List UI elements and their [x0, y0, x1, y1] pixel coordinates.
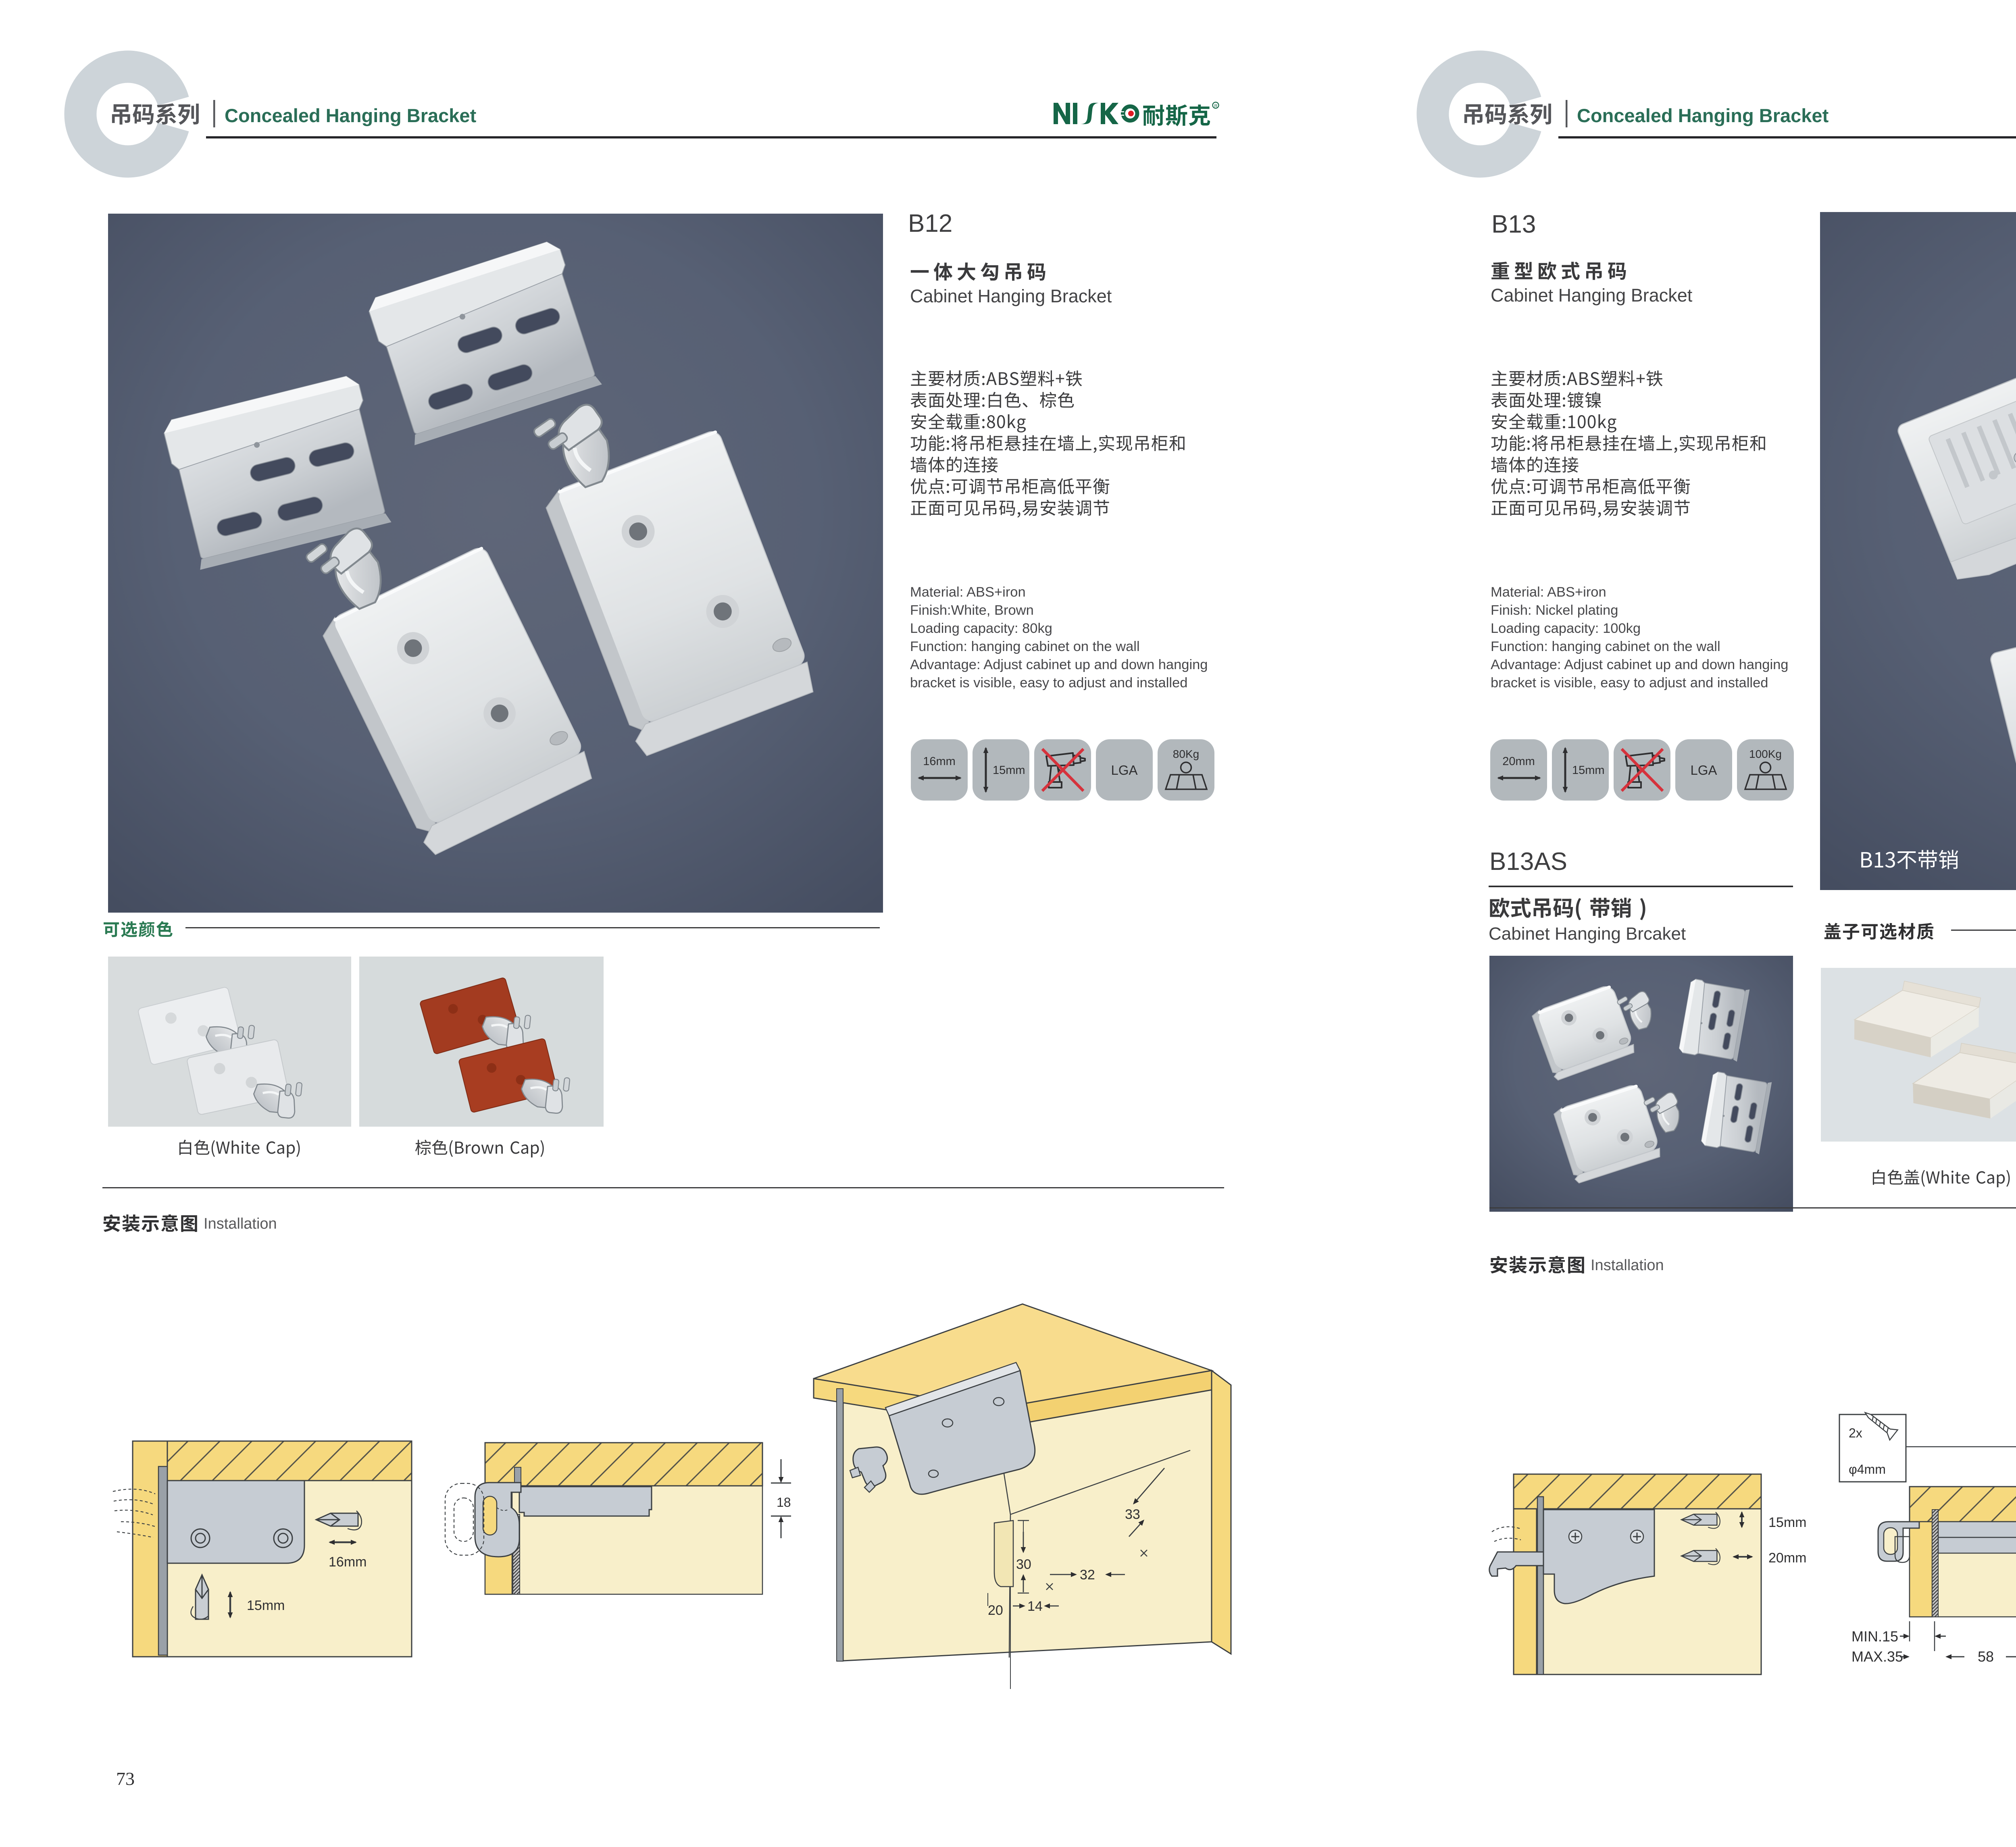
svg-text:20mm: 20mm	[1768, 1550, 1806, 1566]
svg-text:80Kg: 80Kg	[1173, 748, 1199, 760]
svg-text:15mm: 15mm	[1572, 764, 1605, 777]
svg-text:15mm: 15mm	[1768, 1515, 1806, 1530]
svg-text:Loading capacity: 80kg: Loading capacity: 80kg	[910, 621, 1052, 636]
svg-text:Finish: Nickel plating: Finish: Nickel plating	[1491, 603, 1618, 618]
svg-text:Function: hanging cabinet on t: Function: hanging cabinet on the wall	[910, 639, 1140, 654]
svg-text:33: 33	[1125, 1507, 1140, 1522]
svg-text:Cabinet Hanging Bracket: Cabinet Hanging Bracket	[910, 286, 1112, 306]
svg-text:Advantage: Adjust cabinet up a: Advantage: Adjust cabinet up and down ha…	[1491, 657, 1789, 672]
svg-text:Finish:White, Brown: Finish:White, Brown	[910, 603, 1034, 618]
svg-text:16mm: 16mm	[329, 1554, 367, 1570]
svg-text:Installation: Installation	[204, 1215, 277, 1232]
svg-text:bracket is visible, easy to ad: bracket is visible, easy to adjust and i…	[1491, 675, 1768, 691]
svg-text:20mm: 20mm	[1502, 755, 1535, 768]
svg-text:15mm: 15mm	[247, 1598, 285, 1613]
svg-text:LGA: LGA	[1690, 763, 1717, 778]
svg-text:B12: B12	[908, 210, 952, 237]
svg-text:LGA: LGA	[1111, 763, 1137, 778]
svg-text:14: 14	[1027, 1599, 1043, 1614]
svg-text:B13AS: B13AS	[1489, 848, 1567, 876]
svg-text:R: R	[1214, 104, 1218, 108]
svg-text:Loading capacity: 100kg: Loading capacity: 100kg	[1491, 621, 1641, 636]
svg-text:Cabinet Hanging Bracket: Cabinet Hanging Bracket	[1491, 285, 1693, 306]
svg-text:Installation: Installation	[1591, 1257, 1664, 1274]
svg-text:30: 30	[1016, 1557, 1031, 1572]
svg-text:73: 73	[116, 1768, 135, 1789]
svg-text:18: 18	[777, 1495, 791, 1510]
svg-text:100Kg: 100Kg	[1749, 748, 1782, 760]
svg-text:Cabinet Hanging Brcaket: Cabinet Hanging Brcaket	[1489, 924, 1686, 944]
svg-text:15mm: 15mm	[993, 764, 1025, 777]
svg-text:MAX.35: MAX.35	[1851, 1648, 1903, 1665]
svg-text:Function: hanging cabinet on t: Function: hanging cabinet on the wall	[1491, 639, 1720, 654]
svg-text:φ4mm: φ4mm	[1849, 1462, 1886, 1477]
svg-text:58: 58	[1978, 1648, 1994, 1665]
svg-text:Advantage: Adjust cabinet up a: Advantage: Adjust cabinet up and down ha…	[910, 657, 1208, 672]
svg-text:B13: B13	[1491, 210, 1536, 238]
svg-text:2x: 2x	[1849, 1426, 1862, 1440]
svg-text:Material: ABS+iron: Material: ABS+iron	[910, 584, 1026, 600]
svg-text:32: 32	[1080, 1567, 1095, 1583]
svg-text:Concealed Hanging Bracket: Concealed Hanging Bracket	[225, 105, 477, 126]
svg-text:MIN.15: MIN.15	[1851, 1628, 1898, 1645]
svg-text:20: 20	[988, 1603, 1003, 1618]
svg-text:16mm: 16mm	[923, 755, 956, 768]
svg-text:bracket is visible, easy to ad: bracket is visible, easy to adjust and i…	[910, 675, 1187, 691]
svg-text:Concealed Hanging Bracket: Concealed Hanging Bracket	[1577, 105, 1829, 126]
svg-text:Material: ABS+iron: Material: ABS+iron	[1491, 584, 1606, 600]
